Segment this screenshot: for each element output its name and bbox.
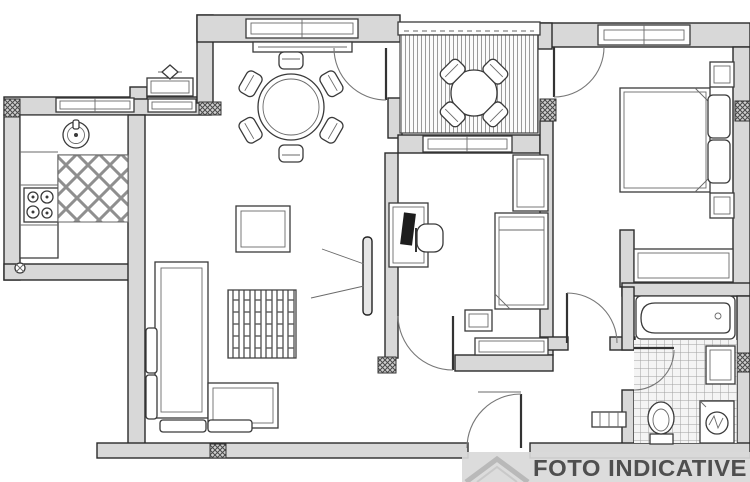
washing-machine-icon: [700, 401, 734, 443]
desk-chair-icon: [416, 224, 443, 252]
wall-kitchen-divider: [128, 115, 145, 445]
hatch-block: [735, 101, 750, 121]
hatch-block: [210, 444, 226, 458]
study-door: [398, 316, 453, 370]
watermark: FOTO INDICATIVE: [462, 452, 750, 482]
toilet-icon: [648, 402, 674, 444]
tv-icon: [311, 237, 372, 315]
balcony: [398, 22, 540, 133]
wardrobe-icon: [513, 155, 548, 211]
bedroom-wardrobe-icon: [634, 249, 733, 282]
dining-chair-icon: [279, 145, 303, 162]
dining-chair-icon: [237, 69, 264, 98]
dining-chair-icon: [237, 116, 264, 145]
wall-nook-stub: [130, 87, 147, 99]
radiator-icon: [592, 412, 626, 427]
study-window: [423, 136, 512, 152]
kitchen-window-1: [56, 98, 134, 112]
hatch-block: [737, 353, 750, 372]
bedroom-balcony-door: [554, 47, 604, 97]
floor-plan-drawing: FOTO INDICATIVE: [0, 0, 750, 482]
radiator-icon: [147, 65, 193, 96]
bedroom: [620, 62, 734, 282]
hatch-block: [540, 99, 556, 121]
bathtub-icon: [636, 296, 735, 339]
dresser-icon: [475, 338, 548, 355]
bathroom-sink-icon: [706, 346, 735, 384]
diamond-tile-floor: [58, 155, 128, 222]
wall-closet-left: [620, 230, 634, 287]
hatch-block: [378, 357, 396, 373]
bathroom: [634, 296, 737, 444]
wall-study-bottom: [455, 355, 553, 371]
dining-window: [246, 19, 358, 52]
living-room: [146, 206, 372, 432]
nightstand-icon: [710, 193, 734, 218]
hallway: [592, 412, 626, 427]
bedroom-corridor-door: [567, 293, 617, 343]
valve-icon: [15, 263, 25, 273]
nightstand-icon: [710, 62, 734, 87]
nightstand-icon: [465, 310, 492, 331]
pillow-icon: [708, 95, 730, 138]
study-room: [389, 155, 548, 355]
hatch-block: [4, 99, 20, 117]
wall-bathroom-left-upper: [622, 287, 634, 350]
wall-bathroom-top: [622, 283, 750, 296]
hatch-block: [199, 102, 221, 115]
striped-rug-icon: [228, 290, 296, 358]
double-bed-icon: [620, 88, 730, 192]
single-bed-icon: [495, 213, 548, 309]
wall-kitchen-left: [4, 115, 20, 280]
stove-burners-icon: [24, 188, 58, 222]
kitchen: [15, 115, 128, 273]
watermark-label: FOTO INDICATIVE: [533, 455, 747, 481]
entrance-door-icon: [467, 392, 521, 448]
floor-plan-canvas: FOTO INDICATIVE: [0, 0, 750, 482]
dining-chair-icon: [279, 52, 303, 69]
kitchen-window-2: [148, 99, 196, 112]
pillow-icon: [708, 140, 730, 183]
bedroom-window: [598, 25, 690, 45]
round-dining-table-icon: [258, 74, 324, 140]
coffee-table-icon: [236, 206, 290, 252]
dining-chair-icon: [318, 116, 345, 145]
wall-bottom-left: [97, 443, 468, 458]
balcony-parapet: [398, 22, 540, 35]
wall-right-outer-upper: [733, 47, 750, 296]
